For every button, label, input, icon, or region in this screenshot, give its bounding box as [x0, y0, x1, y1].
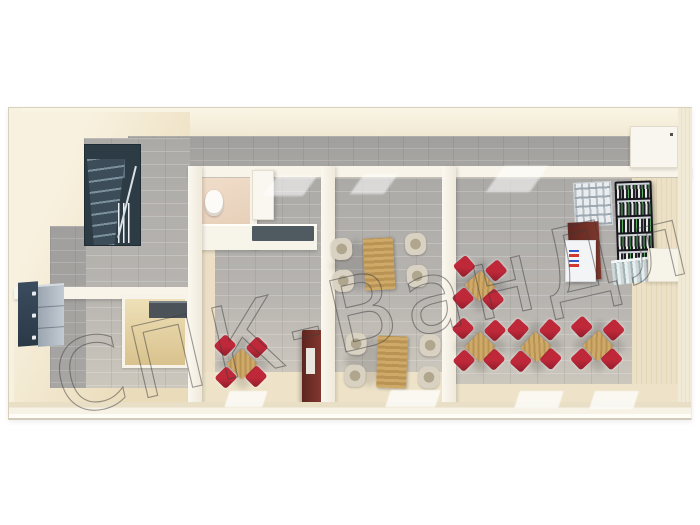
dining-set — [507, 316, 564, 379]
chair — [404, 233, 426, 256]
table-top — [376, 335, 408, 388]
dining-set — [570, 315, 626, 377]
chair — [332, 269, 354, 292]
window-light — [486, 166, 548, 192]
chair — [406, 264, 428, 287]
dining-set — [453, 317, 507, 377]
table-top — [363, 237, 396, 290]
chair — [331, 237, 353, 260]
chair — [418, 366, 440, 389]
floor-mat — [589, 391, 639, 409]
floor-mat — [514, 391, 564, 408]
floorplan-render: СПК-ВанДл — [0, 0, 700, 525]
dining-set — [341, 330, 443, 393]
floor-mat — [385, 390, 441, 407]
floor-mat — [224, 391, 267, 407]
window-light — [350, 174, 398, 194]
chair — [344, 364, 366, 387]
chair — [419, 334, 441, 357]
furniture-layer — [0, 0, 700, 525]
dining-set — [215, 334, 269, 394]
dining-set — [327, 231, 430, 296]
dining-set — [451, 254, 509, 318]
window-light — [263, 176, 317, 196]
chair — [345, 332, 367, 355]
